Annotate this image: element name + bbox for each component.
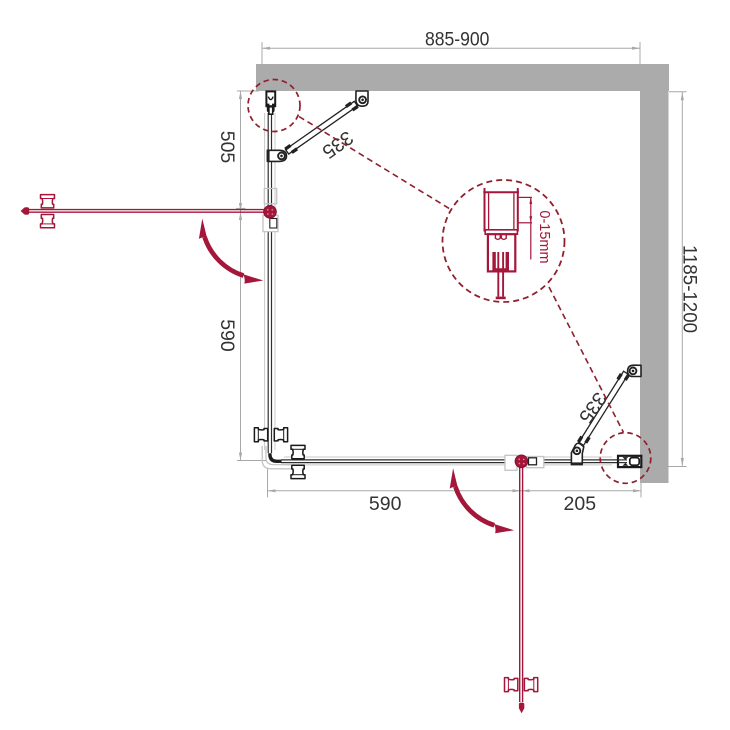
svg-text:505: 505	[216, 131, 238, 164]
svg-text:0-15mm: 0-15mm	[536, 210, 552, 263]
svg-text:885-900: 885-900	[425, 28, 490, 50]
svg-text:590: 590	[369, 493, 402, 515]
svg-text:205: 205	[564, 493, 597, 515]
svg-text:590: 590	[216, 319, 238, 352]
svg-text:1185-1200: 1185-1200	[679, 245, 701, 333]
